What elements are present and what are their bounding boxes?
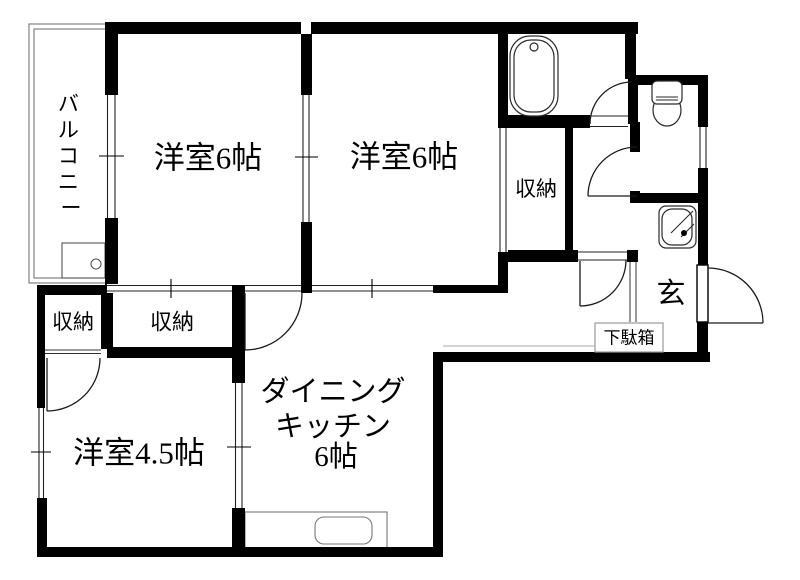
door-arc-toilet [588, 147, 637, 196]
sliding-door [295, 95, 318, 222]
wall-segment [698, 75, 708, 127]
toilet-icon [652, 81, 682, 126]
window [31, 408, 51, 498]
room-label-western-right: 洋室6帖 [350, 140, 459, 175]
floorplan: 下駄箱 バ ル コ [0, 0, 800, 580]
room-label-dk-line1: ダイニング [260, 375, 405, 408]
shoe-cabinet-label: 下駄箱 [604, 329, 655, 348]
kitchen-counter [245, 512, 387, 548]
wall-segment [37, 285, 107, 295]
bathtub-icon [510, 36, 558, 116]
wall-segment [301, 222, 312, 293]
wall-segment [498, 34, 508, 128]
wall-segment [630, 193, 708, 203]
sliding-door [227, 383, 251, 508]
wall-segment [301, 34, 312, 95]
wall-segment [698, 168, 708, 265]
door-arc-hall-entrance [580, 260, 626, 306]
room-label-balcony: バ ル コ ニ ー [58, 92, 84, 220]
wall-segment [311, 22, 638, 34]
sliding-door [107, 279, 232, 298]
door-opening [630, 152, 640, 191]
room-label-dk-line2: キッチン [275, 411, 391, 443]
wall-segment [37, 285, 45, 408]
floorplan-drawing: 下駄箱 バ ル コ [0, 0, 800, 580]
wall-segment [565, 128, 573, 260]
labels: バ ル コ ニ ー 洋室6帖 洋室6帖 洋室4.5帖 ダイニング キッチン 6帖… [52, 92, 686, 473]
room-label-dk-line3: 6帖 [314, 440, 358, 473]
wall-segment [627, 250, 638, 262]
sliding-door [312, 279, 433, 298]
room-label-entrance: 玄 [656, 277, 685, 310]
washbasin-icon [659, 206, 696, 248]
wall-segment [433, 352, 443, 557]
door-arc-left-room-dk [245, 293, 302, 350]
wall-segment [498, 115, 590, 128]
wall-segment [105, 218, 118, 293]
kitchen-sink-icon [315, 517, 372, 544]
room-label-western-45: 洋室4.5帖 [73, 436, 205, 471]
door-leaf [697, 265, 708, 322]
wall-segment [105, 22, 301, 34]
wall-segment [105, 22, 118, 95]
closet-label-right: 収納 [515, 177, 557, 201]
wall-segment [37, 547, 443, 557]
closet-label-small: 収納 [52, 310, 94, 334]
window [99, 95, 124, 218]
door-opening [590, 114, 628, 129]
closet-opening [45, 350, 101, 354]
shoe-cabinet: 下駄箱 [595, 323, 663, 352]
wall-segment [107, 347, 238, 358]
sliding-door [498, 128, 508, 252]
wall-segment [625, 34, 636, 79]
wall-segment [433, 352, 710, 362]
washing-machine-pan-icon [62, 243, 105, 278]
entrance-door [697, 265, 763, 323]
wall-segment [101, 293, 113, 349]
room-label-western-left: 洋室6帖 [154, 141, 263, 176]
door-arc-small-closet [47, 358, 100, 411]
door-opening [245, 284, 301, 293]
closet-label-wide: 収納 [150, 310, 194, 335]
entrance-step [630, 262, 636, 322]
wall-segment [433, 285, 508, 293]
window [698, 127, 708, 168]
door-opening [578, 249, 627, 263]
wall-segment [232, 285, 245, 383]
